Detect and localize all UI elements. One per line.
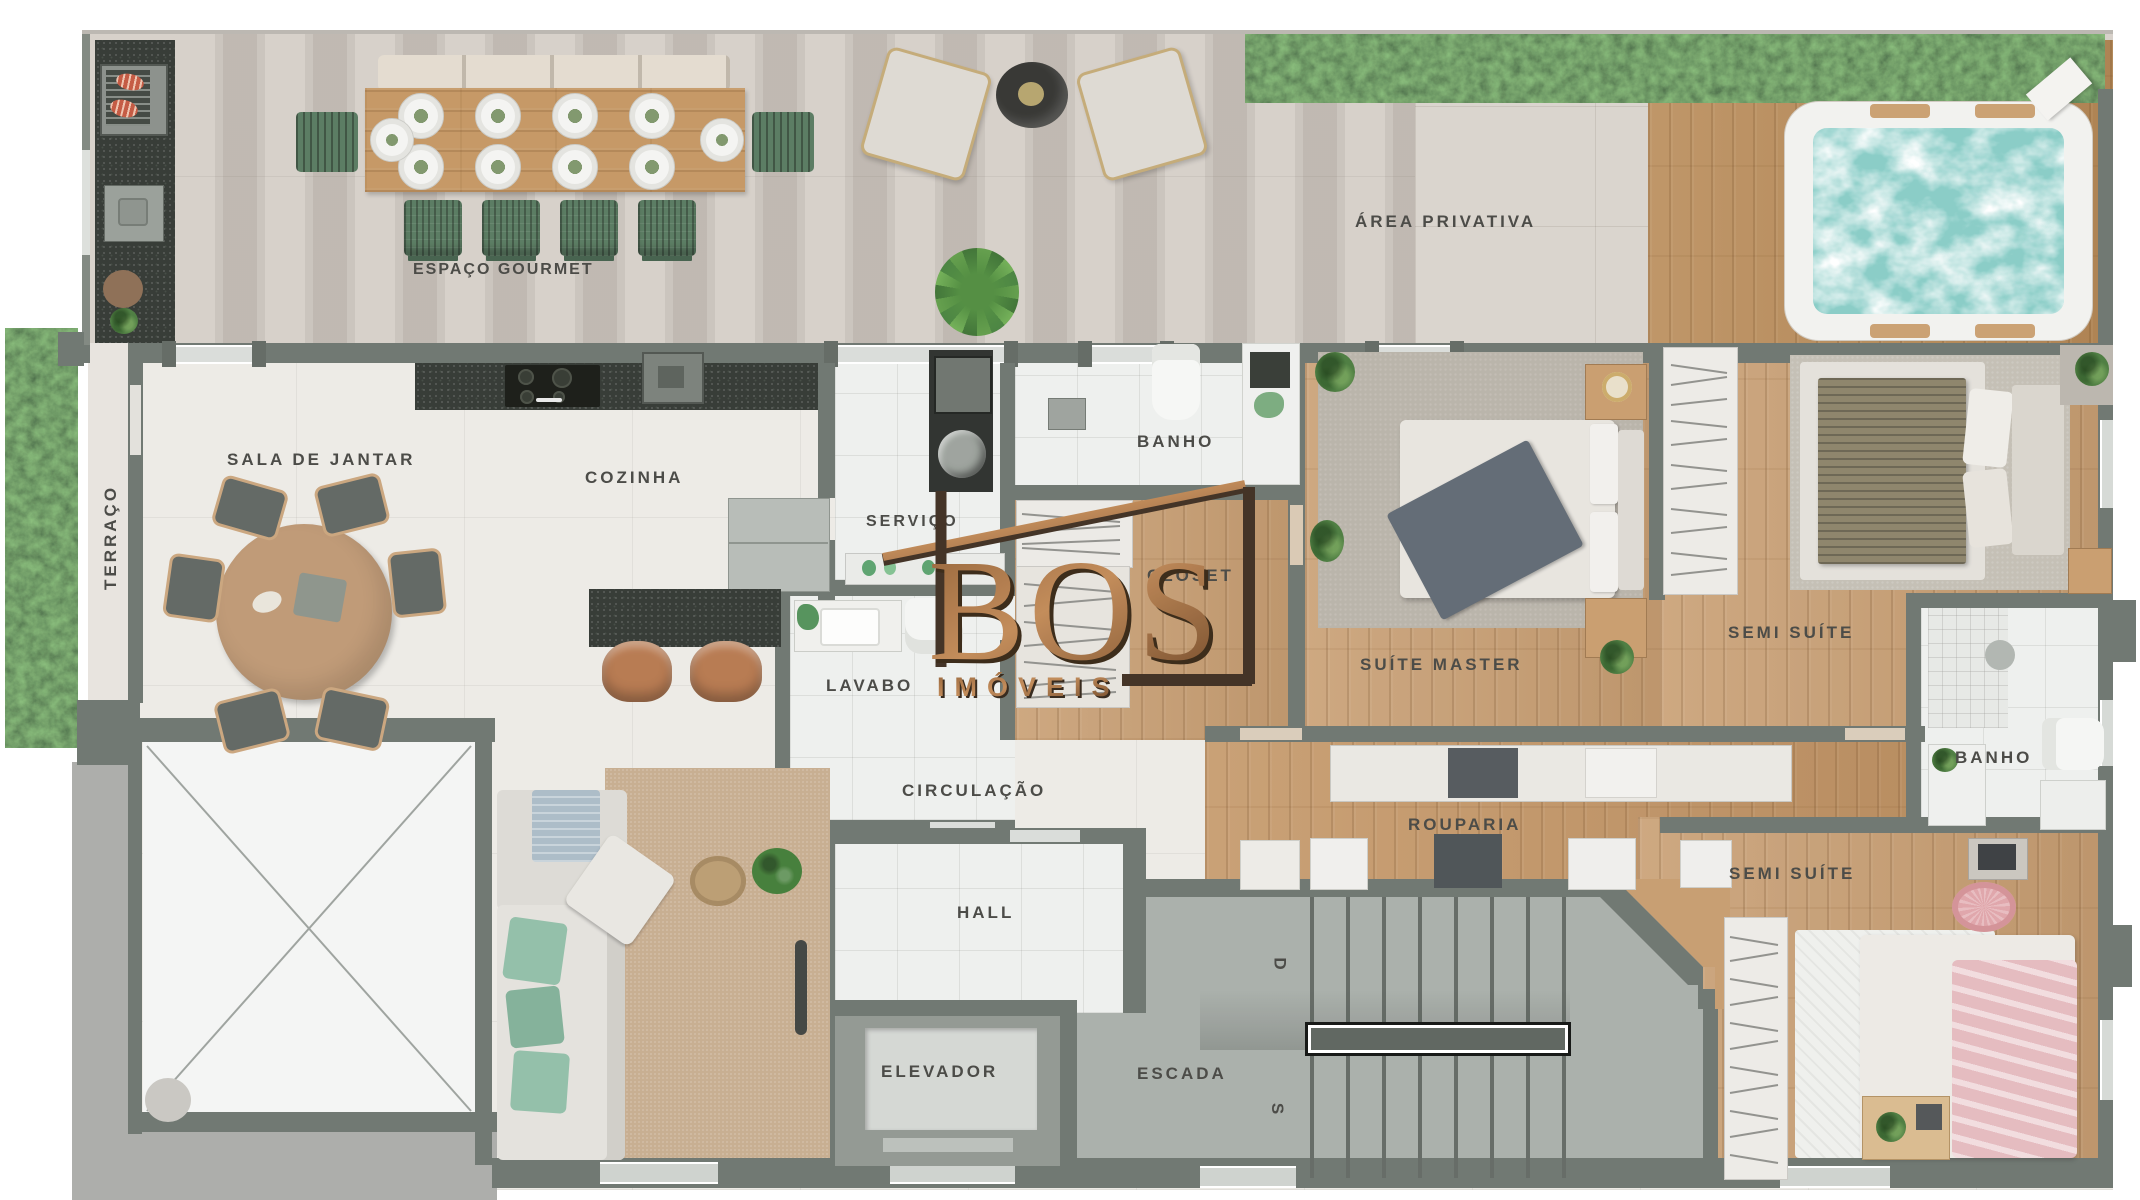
- svg-text:IMÓVEIS: IMÓVEIS: [937, 671, 1120, 702]
- svg-text:BOS: BOS: [928, 531, 1222, 691]
